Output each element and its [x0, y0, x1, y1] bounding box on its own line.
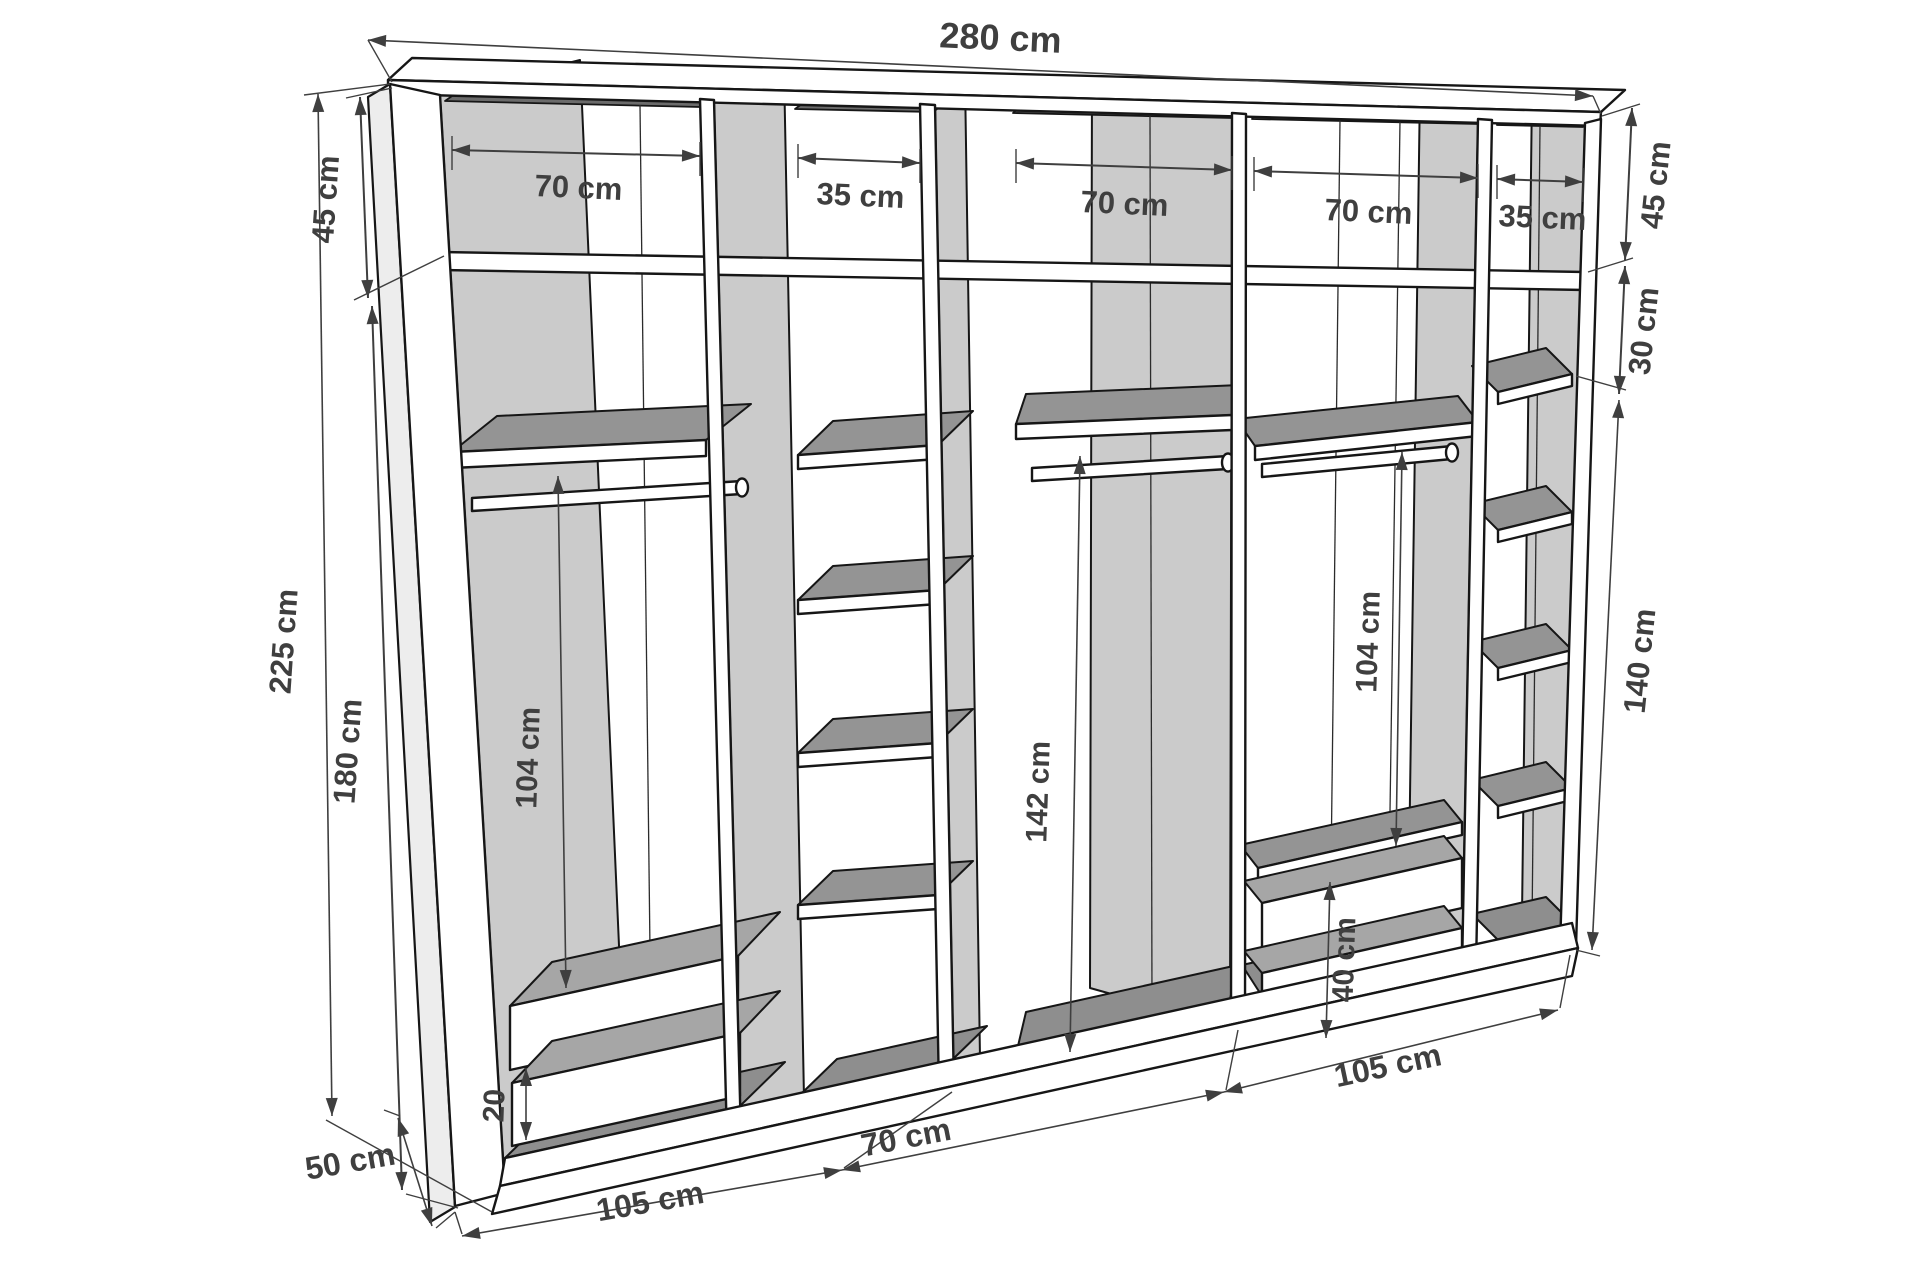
label-bay3-width: 70 cm	[1080, 184, 1169, 223]
label-total-width: 280 cm	[939, 14, 1063, 60]
dim-bay4-hang-line	[1396, 452, 1402, 846]
label-bay4-width: 70 cm	[1324, 192, 1413, 231]
label-bay1-hang: 104 cm	[510, 706, 547, 809]
dim-total-width-ext-left	[368, 40, 392, 82]
drawing-canvas: 280 cm 70 cm 35 cm 70 cm 70 cm 35 cm	[0, 0, 1920, 1280]
dim-right-top-line	[1625, 108, 1632, 260]
label-right-column: 140 cm	[1617, 607, 1663, 715]
label-right-top-height: 45 cm	[1634, 139, 1678, 230]
label-bottom-right-span: 105 cm	[1331, 1036, 1445, 1094]
bay4-rod-cap	[1446, 444, 1458, 462]
dim-bay2-line	[798, 158, 920, 163]
dim-total-height-line	[318, 94, 332, 1116]
dim-bay-widths: 70 cm 35 cm 70 cm 70 cm 35 cm	[452, 136, 1587, 237]
label-bay4-drawers: 40 cm	[1327, 917, 1363, 1003]
dim-bay3-hang-line	[1070, 456, 1080, 1052]
top-section-shelf	[442, 252, 1585, 290]
wardrobe-dimension-diagram: 280 cm 70 cm 35 cm 70 cm 70 cm 35 cm	[0, 0, 1920, 1280]
dim-right-gap-line	[1619, 266, 1625, 394]
dim-right-column-line	[1592, 400, 1619, 950]
label-bay1-width: 70 cm	[534, 168, 623, 207]
bay1-rod-cap	[736, 479, 748, 497]
label-right-gap: 30 cm	[1622, 285, 1666, 376]
label-left-top-height: 45 cm	[305, 154, 346, 244]
label-bay4-hang: 104 cm	[1350, 590, 1387, 693]
label-depth: 50 cm	[302, 1136, 398, 1187]
label-left-lower-height: 180 cm	[326, 698, 368, 805]
dim-right-column-ext-bottom	[1576, 950, 1600, 956]
dim-bottom-ext-1	[455, 1212, 462, 1234]
label-bay2-width: 35 cm	[816, 176, 905, 215]
shelves	[452, 348, 1572, 919]
label-total-height: 225 cm	[262, 588, 304, 695]
label-bay1-drawer: 20	[477, 1088, 511, 1123]
dim-depth-ext-top	[384, 1110, 400, 1116]
dim-left-top-line	[360, 97, 368, 298]
label-bay5-width: 35 cm	[1498, 198, 1587, 237]
divider-3-front-edge	[1231, 113, 1246, 1027]
label-bay3-hang: 142 cm	[1020, 740, 1057, 843]
